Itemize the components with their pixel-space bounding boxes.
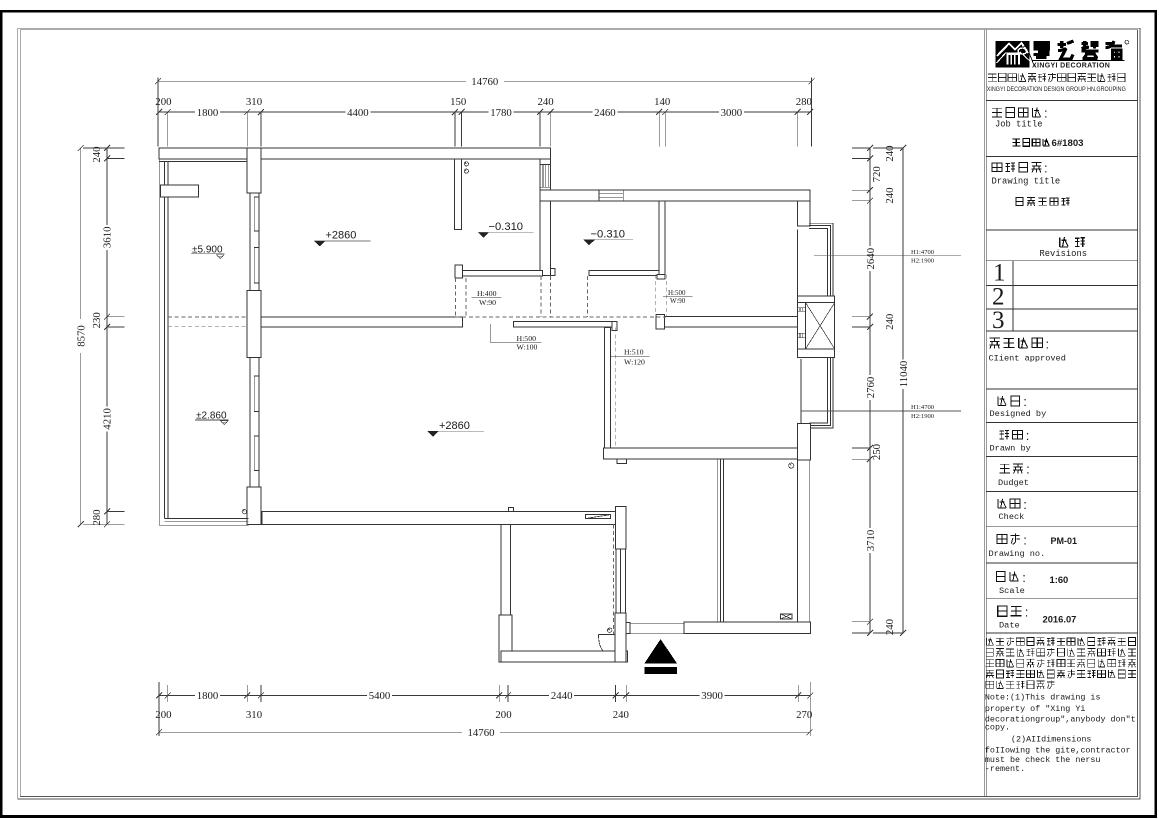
svg-text:200: 200 [155, 96, 171, 108]
svg-text:2016.07: 2016.07 [1043, 614, 1077, 625]
svg-text::: : [1022, 570, 1026, 585]
svg-text:Check: Check [999, 512, 1025, 522]
svg-text:250: 250 [871, 444, 883, 460]
svg-text:240: 240 [537, 96, 553, 108]
svg-text:310: 310 [246, 709, 262, 721]
svg-text:(2)AIIdimensions: (2)AIIdimensions [1011, 735, 1091, 745]
svg-text:W:90: W:90 [479, 298, 496, 307]
svg-text:-rement.: -rement. [985, 764, 1025, 774]
svg-text:CIient approved: CIient approved [989, 354, 1066, 364]
svg-text:240: 240 [91, 146, 103, 162]
svg-text:140: 140 [654, 96, 670, 108]
svg-text::: : [1023, 394, 1027, 409]
svg-text:280: 280 [796, 96, 812, 108]
svg-text:6#1803: 6#1803 [1052, 138, 1084, 149]
svg-text:5400: 5400 [369, 690, 391, 702]
svg-text:3710: 3710 [865, 530, 877, 552]
svg-text:Dudget: Dudget [998, 478, 1029, 488]
svg-text:4400: 4400 [347, 107, 369, 119]
svg-text:Revisions: Revisions [1040, 249, 1088, 259]
svg-text:270: 270 [796, 709, 812, 721]
svg-text:240: 240 [884, 187, 896, 203]
svg-text:Drawing title: Drawing title [992, 177, 1061, 187]
svg-text::: : [1044, 160, 1048, 175]
svg-text::: : [1026, 462, 1030, 477]
svg-text:240: 240 [884, 619, 896, 635]
svg-text:310: 310 [246, 96, 262, 108]
svg-text:2640: 2640 [865, 248, 877, 270]
svg-text:3000: 3000 [721, 107, 743, 119]
svg-text:H:500: H:500 [668, 289, 686, 297]
svg-text:720: 720 [871, 166, 883, 182]
svg-text:3: 3 [992, 307, 1005, 334]
svg-text:H2:1900: H2:1900 [911, 413, 935, 420]
svg-text:280: 280 [91, 509, 103, 525]
svg-text:+2860: +2860 [439, 420, 470, 432]
svg-text:PM-01: PM-01 [1051, 536, 1078, 546]
svg-text:Note:(1)This drawing is: Note:(1)This drawing is [985, 693, 1101, 703]
svg-text:8570: 8570 [75, 325, 87, 347]
svg-text:−0.310: −0.310 [489, 221, 524, 233]
svg-text:150: 150 [450, 96, 466, 108]
svg-text:200: 200 [155, 709, 171, 721]
svg-text:2760: 2760 [865, 377, 877, 399]
svg-text:copy.: copy. [985, 723, 1010, 733]
svg-text:2460: 2460 [594, 107, 616, 119]
svg-text:14760: 14760 [471, 76, 498, 88]
svg-text:2440: 2440 [551, 690, 573, 702]
svg-text:1800: 1800 [197, 107, 219, 119]
svg-text:Job title: Job title [995, 119, 1043, 129]
svg-text:H1:4700: H1:4700 [911, 404, 935, 411]
svg-text:H:510: H:510 [624, 348, 644, 357]
svg-text:14760: 14760 [468, 727, 495, 739]
svg-text::: : [1023, 497, 1027, 512]
svg-text:W:90: W:90 [670, 297, 686, 305]
svg-text:W:100: W:100 [517, 343, 538, 352]
svg-text::: : [1023, 532, 1027, 547]
svg-text:1780: 1780 [490, 107, 512, 119]
svg-text:1:60: 1:60 [1050, 574, 1069, 585]
svg-text::: : [1025, 605, 1029, 620]
svg-text:240: 240 [884, 314, 896, 330]
svg-text:+2860: +2860 [326, 230, 357, 242]
svg-text::: : [1026, 428, 1030, 443]
svg-text:3900: 3900 [701, 690, 723, 702]
svg-text:4210: 4210 [102, 408, 114, 430]
svg-text:XINGYI DECORATION: XINGYI DECORATION [1032, 62, 1110, 69]
svg-text:1: 1 [993, 260, 1006, 287]
svg-text:Scale: Scale [999, 586, 1025, 596]
svg-text::: : [1046, 337, 1050, 352]
svg-text:Date: Date [999, 620, 1020, 630]
svg-text:200: 200 [495, 709, 511, 721]
svg-text:foIIowing the gite,contractor: foIIowing the gite,contractor [985, 745, 1131, 755]
svg-text:Drawn by: Drawn by [990, 444, 1031, 454]
svg-text:230: 230 [91, 312, 103, 328]
svg-text:1800: 1800 [197, 690, 219, 702]
svg-text::: : [1044, 106, 1048, 121]
svg-text:H2:1900: H2:1900 [911, 257, 935, 264]
svg-text:W:120: W:120 [624, 357, 645, 366]
svg-text:Drawing no.: Drawing no. [989, 549, 1046, 559]
svg-text:−0.310: −0.310 [591, 229, 626, 241]
svg-text:240: 240 [884, 145, 896, 161]
svg-text:11040: 11040 [898, 361, 910, 388]
svg-text:property of ″Xing Yi: property of ″Xing Yi [985, 704, 1086, 714]
svg-text:3610: 3610 [102, 227, 114, 249]
svg-text:H1:4700: H1:4700 [911, 249, 935, 256]
svg-text:XINGYI DECORATION DESIGN GROUP: XINGYI DECORATION DESIGN GROUP HN.GROUPI… [987, 86, 1126, 93]
svg-text:Designed by: Designed by [990, 409, 1047, 419]
svg-text:240: 240 [613, 709, 629, 721]
svg-text:H:400: H:400 [477, 289, 497, 298]
